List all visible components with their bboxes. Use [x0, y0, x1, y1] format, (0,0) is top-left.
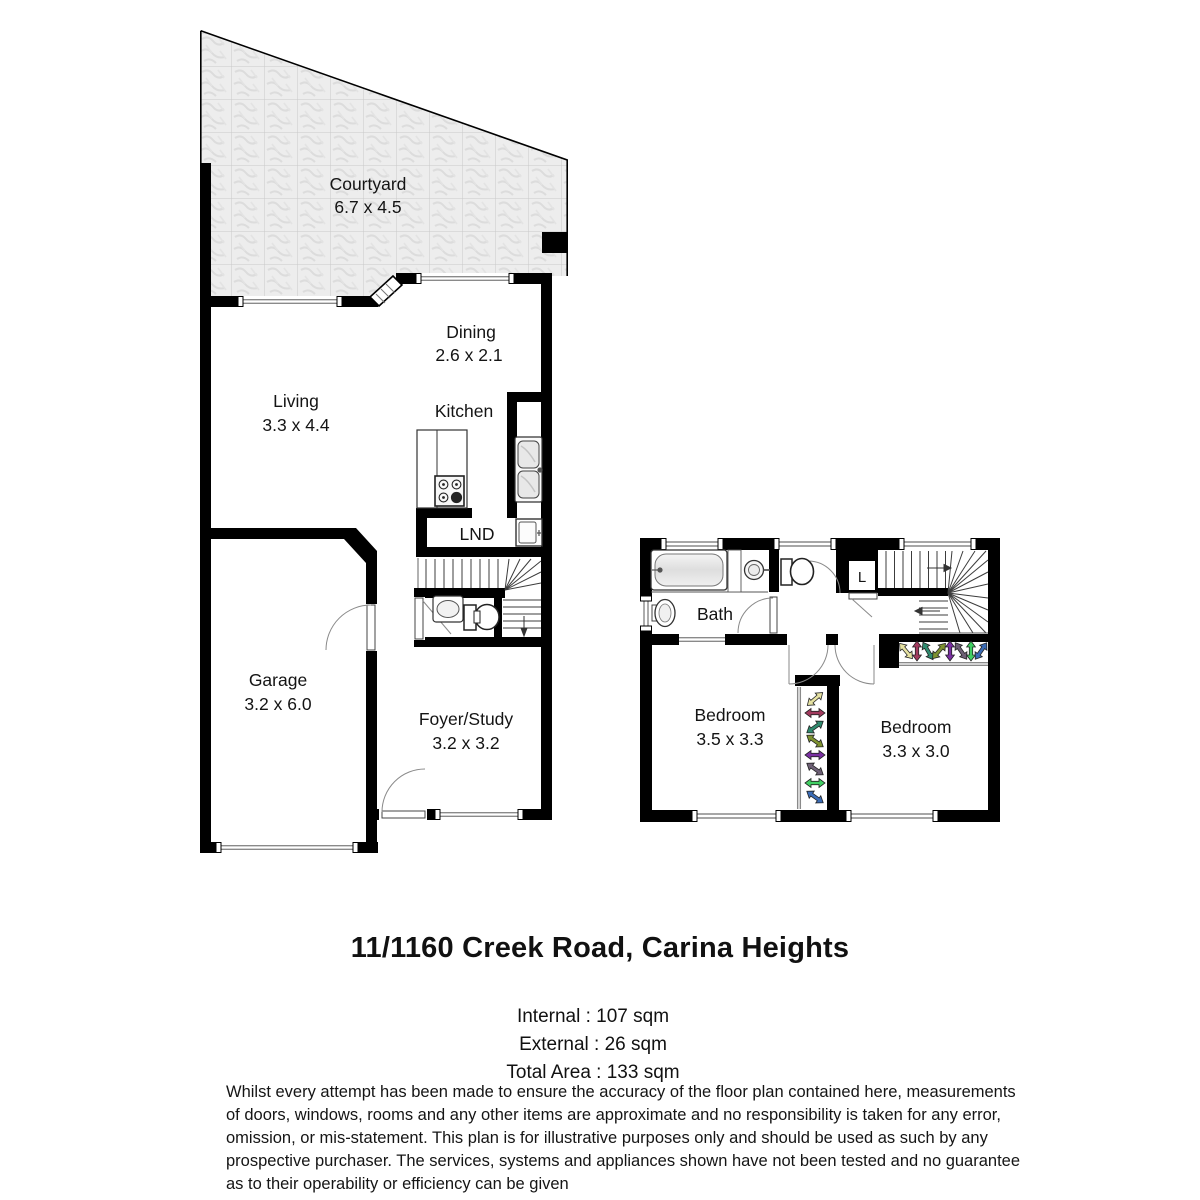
window-cap: [416, 274, 421, 284]
disclaimer-text: Whilst every attempt has been made to en…: [226, 1081, 974, 1196]
washing-machine-icon: [516, 519, 542, 546]
living-dims: 3.3 x 4.4: [262, 415, 329, 435]
hanger-icon: [804, 760, 825, 779]
stair-winder: [505, 572, 541, 590]
stair-arrow-left-icon: [915, 608, 940, 615]
hanger-icon: [804, 732, 825, 751]
window-cap: [518, 810, 523, 820]
window-cap: [216, 843, 221, 853]
hanger-icon: [804, 718, 825, 737]
window-cap: [337, 297, 342, 307]
window-opening: [435, 809, 523, 820]
window-cap: [776, 811, 781, 822]
stair-arrow-down-icon: [521, 616, 527, 636]
round-basin-icon: [745, 561, 771, 580]
floorplan-page: Courtyard 6.7 x 4.5 Living 3.3 x 4.4 Din…: [0, 0, 1200, 1200]
window-opening: [899, 538, 976, 550]
living-label: Living: [273, 391, 319, 411]
window-opening: [661, 538, 723, 550]
hanger-icon: [805, 709, 825, 718]
courtyard-area: [201, 31, 567, 299]
hanger-icon: [967, 641, 976, 661]
window-cap: [661, 539, 666, 550]
stair-winder: [948, 551, 986, 593]
external-area: External : 26 sqm: [0, 1031, 1186, 1059]
hanger-icon: [804, 788, 825, 807]
hanger-icon: [805, 751, 825, 760]
window-opening: [416, 273, 514, 284]
window-cap: [971, 539, 976, 550]
window-opening: [679, 634, 725, 645]
linen-label: L: [858, 569, 866, 586]
window-cap: [353, 843, 358, 853]
foyer-label: Foyer/Study: [419, 709, 514, 729]
stair-arrow-right-icon: [927, 565, 951, 572]
shower-partition: [728, 550, 741, 592]
courtyard-label: Courtyard: [330, 174, 407, 194]
wardrobe-hangers-vertical: [804, 689, 825, 806]
hanger-icon: [805, 689, 826, 709]
window-opening: [795, 687, 803, 809]
courtyard-ac-unit: [542, 232, 567, 253]
window-cap: [509, 274, 514, 284]
bedroom-right-dims: 3.3 x 3.0: [882, 741, 949, 761]
window-cap: [933, 811, 938, 822]
foyer-dims: 3.2 x 3.2: [432, 733, 499, 753]
window-cap: [435, 810, 440, 820]
stair-winder: [948, 593, 973, 633]
courtyard-dims: 6.7 x 4.5: [334, 197, 401, 217]
window-opening: [899, 660, 988, 668]
laundry-label: LND: [459, 524, 494, 544]
window-cap: [774, 539, 779, 550]
floorplan-drawing: Courtyard 6.7 x 4.5 Living 3.3 x 4.4 Din…: [0, 0, 1200, 900]
wardrobe-hangers-horizontal: [896, 640, 990, 662]
dining-dims: 2.6 x 2.1: [435, 345, 502, 365]
dining-label: Dining: [446, 322, 496, 342]
window-cap: [718, 539, 723, 550]
doors: [326, 561, 877, 820]
garage-dims: 3.2 x 6.0: [244, 694, 311, 714]
disclaimer-line: prospective purchaser. The services, sys…: [226, 1150, 974, 1173]
hanger-icon: [972, 640, 991, 661]
window-cap: [846, 811, 851, 822]
disclaimer-line: omission, or mis-statement. This plan is…: [226, 1127, 974, 1150]
stair-winder: [505, 561, 541, 590]
hanger-icon: [896, 641, 916, 662]
window-cap: [899, 539, 904, 550]
bedroom-right-label: Bedroom: [880, 717, 951, 737]
kitchen-label: Kitchen: [435, 401, 493, 421]
hanger-icon: [946, 641, 955, 661]
toilet-upper-icon: [781, 559, 814, 586]
disclaimer-line: Whilst every attempt has been made to en…: [226, 1081, 974, 1104]
bedroom-left-label: Bedroom: [694, 705, 765, 725]
window-opening: [692, 810, 781, 822]
internal-area: Internal : 107 sqm: [0, 1003, 1186, 1031]
window-opening: [846, 810, 938, 822]
window-cap: [641, 626, 652, 631]
disclaimer-line: as to their operability or efficiency ca…: [226, 1173, 974, 1196]
bath-label: Bath: [697, 604, 733, 624]
bathtub-icon: [651, 550, 727, 590]
bedroom-left-dims: 3.5 x 3.3: [696, 729, 763, 749]
window-cap: [692, 811, 697, 822]
stair-winder: [948, 551, 975, 593]
hanger-icon: [805, 779, 825, 788]
toilet-icon: [464, 605, 499, 631]
hanger-icon: [913, 641, 922, 661]
disclaimer-line: of doors, windows, rooms and any other i…: [226, 1104, 974, 1127]
window-opening: [238, 296, 342, 307]
sink-icon: [515, 437, 543, 502]
address-title: 11/1160 Creek Road, Carina Heights: [0, 932, 1200, 965]
garage-label: Garage: [249, 670, 307, 690]
window-cap: [238, 297, 243, 307]
window-opening: [216, 842, 358, 853]
courtyard-paving: [201, 31, 567, 299]
area-summary: Internal : 107 sqm External : 26 sqm Tot…: [0, 1003, 1186, 1087]
window-opening: [774, 538, 836, 550]
window-cap: [831, 539, 836, 550]
pedestal-basin-icon: [652, 600, 675, 627]
window-cap: [641, 596, 652, 601]
stove-icon: [435, 476, 464, 506]
hanger-icon: [952, 640, 971, 661]
